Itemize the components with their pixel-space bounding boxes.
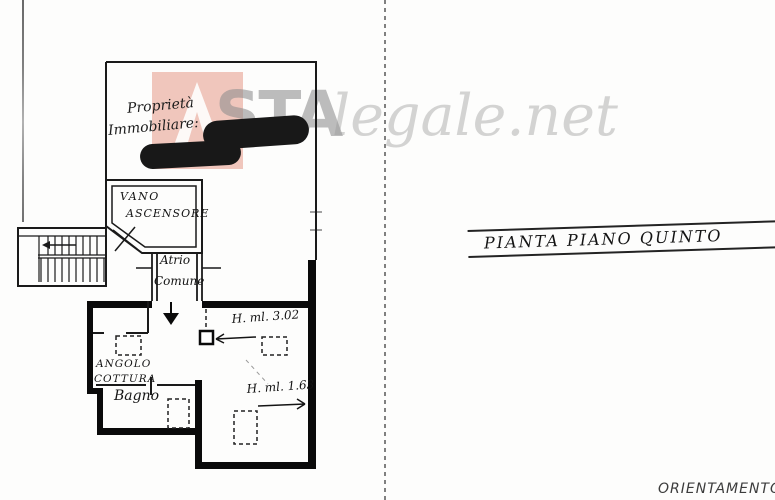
bathroom-label: Bagno bbox=[113, 388, 159, 404]
stairwell bbox=[18, 228, 106, 286]
room-fixture-2 bbox=[234, 411, 257, 444]
orientation-label: ORIENTAMENTO bbox=[658, 481, 775, 497]
elevator-label-1: VANO bbox=[120, 190, 160, 203]
atrium-label-1: Atrio bbox=[159, 253, 190, 267]
bathroom-fixture bbox=[168, 399, 189, 428]
scanned-floor-plan-page: STA legale.net bbox=[0, 0, 775, 500]
elevator-label-2: ASCENSORE bbox=[125, 207, 209, 220]
pillar bbox=[200, 331, 213, 344]
kitchenette-label-1: ANGOLO bbox=[95, 358, 151, 370]
room-labels: VANO ASCENSORE Atrio Comune ANGOLO COTTU… bbox=[94, 190, 315, 404]
stair-treads-lower bbox=[41, 258, 104, 282]
redaction-bar-2 bbox=[139, 139, 241, 169]
entrance-door-arrow bbox=[163, 302, 179, 325]
atrium-label-2: Comune bbox=[154, 274, 204, 288]
ceiling-height-label-2: H. ml. 1.63 bbox=[245, 377, 315, 396]
height-arrow-2 bbox=[258, 399, 305, 409]
ceiling-height-label-1: H. ml. 3.02 bbox=[230, 307, 299, 326]
room-fixture-1 bbox=[262, 337, 287, 355]
measurement-arrows bbox=[216, 334, 305, 409]
kitchenette-label-2: COTTURA bbox=[94, 373, 156, 385]
kitchen-fixture bbox=[116, 336, 141, 355]
height-arrow-1 bbox=[216, 334, 256, 343]
